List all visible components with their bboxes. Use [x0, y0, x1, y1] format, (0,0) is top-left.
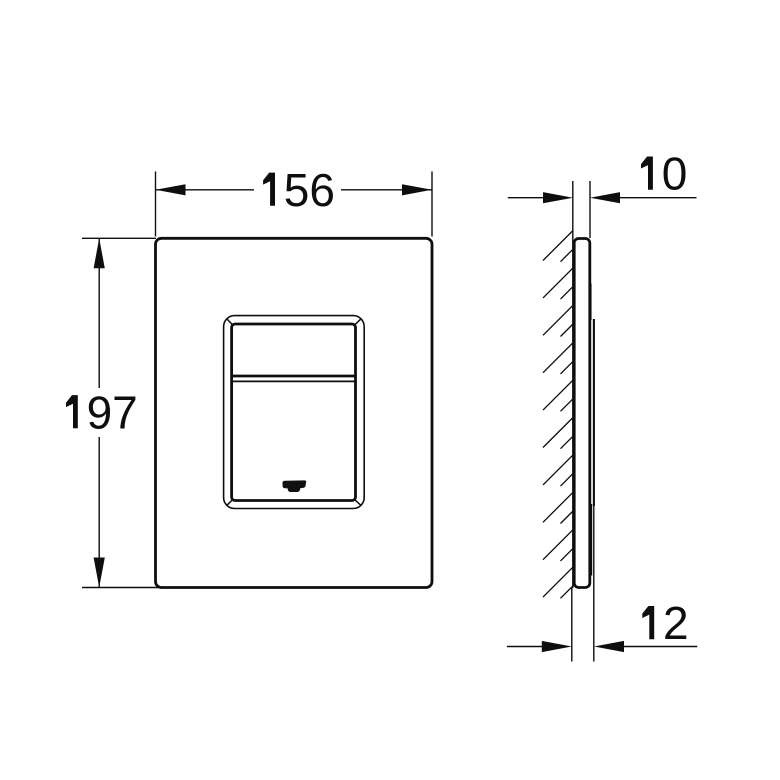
svg-text:0: 0	[662, 148, 688, 200]
svg-text:97: 97	[87, 386, 138, 438]
svg-text:56: 56	[284, 164, 335, 216]
svg-text:2: 2	[663, 597, 689, 649]
